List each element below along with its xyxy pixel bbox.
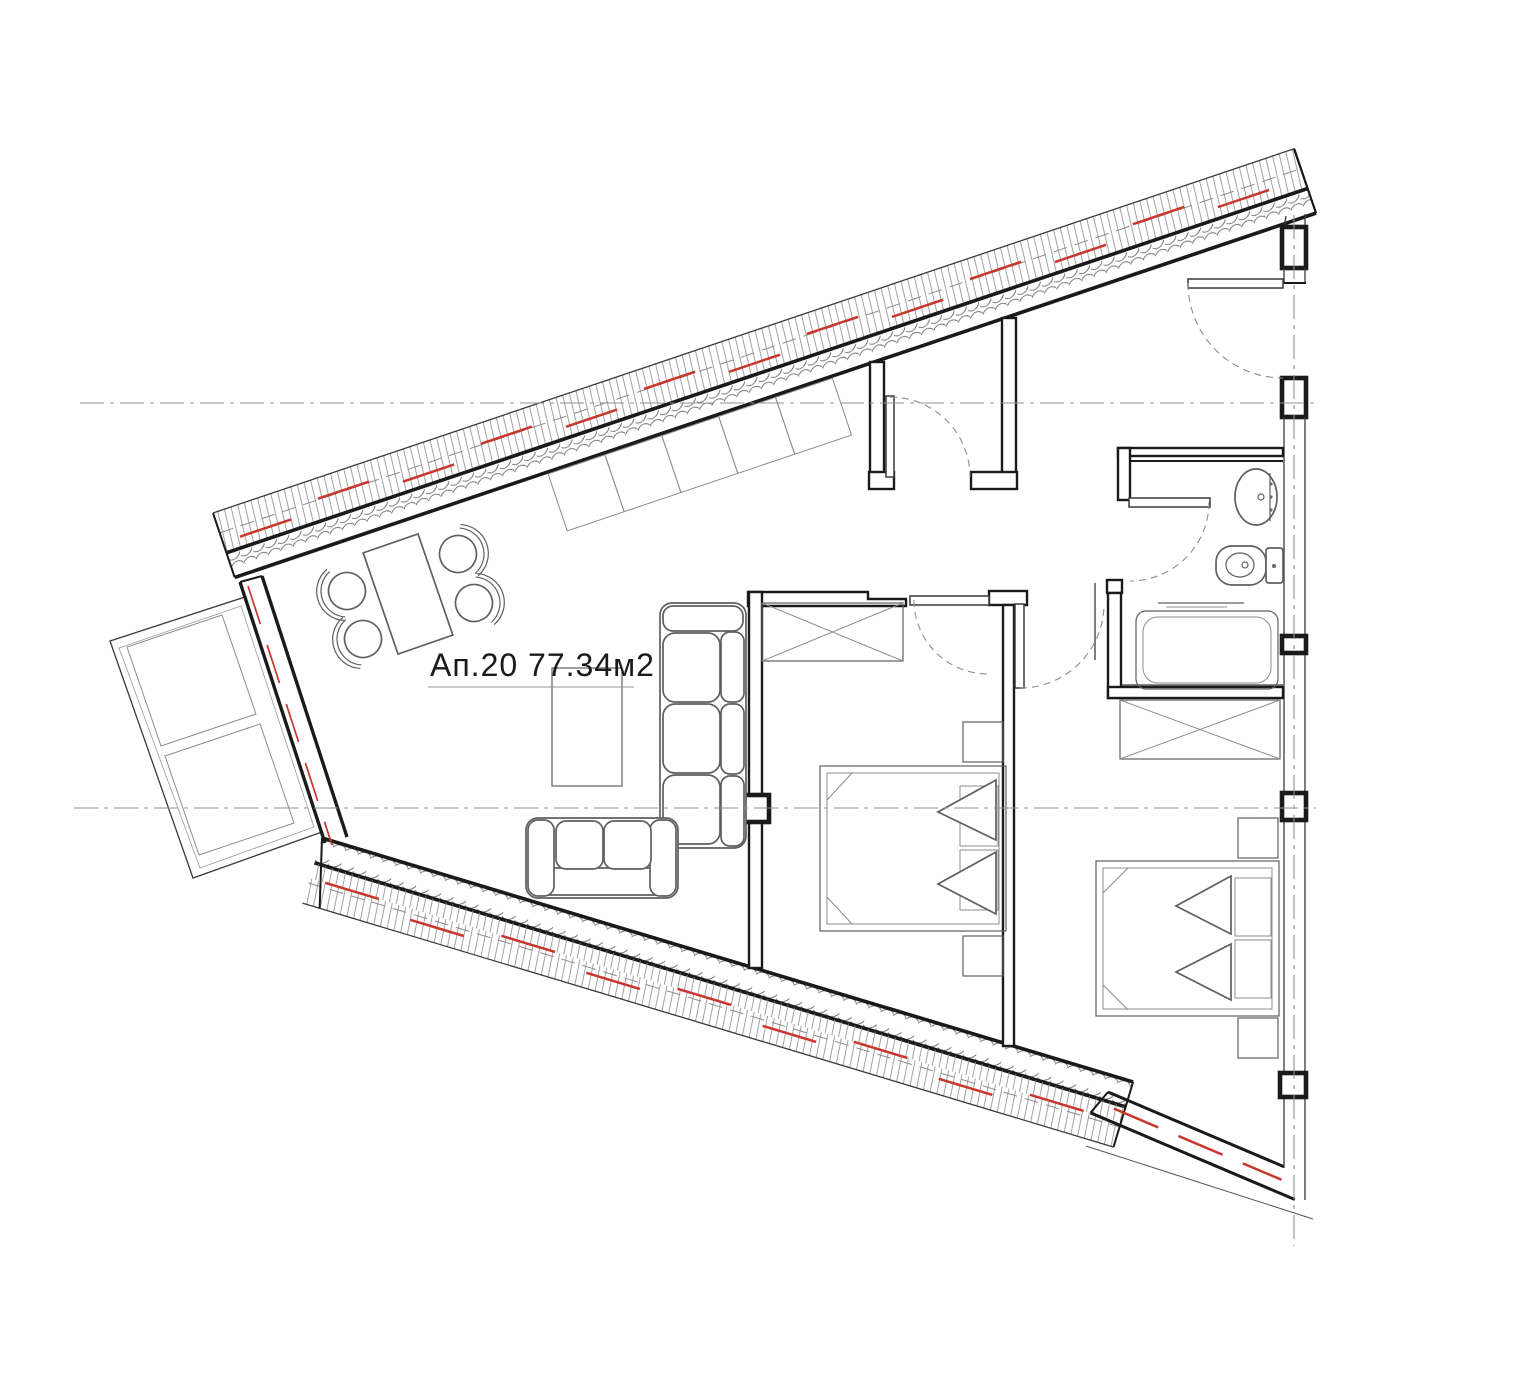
- bedroom2-furniture: [1096, 700, 1280, 1058]
- bed1-pillow: [938, 852, 996, 914]
- entrance-door-leaf: [1188, 279, 1283, 288]
- top-wall-hatch-band: [213, 149, 1308, 553]
- bathroom-left-wall-cap: [1107, 580, 1122, 593]
- dining-chair: [448, 568, 512, 635]
- bathroom-left-wall-upper: [1118, 448, 1130, 500]
- furniture: [309, 469, 1283, 1058]
- nightstand: [1238, 1018, 1278, 1058]
- hall-wall-left: [870, 362, 884, 474]
- bed2-pillow: [1176, 876, 1231, 934]
- window-band-lower-line: [1090, 1113, 1294, 1200]
- bedroom1-door-swing: [914, 600, 988, 674]
- doors: [886, 279, 1283, 688]
- right-wall-column: [1280, 1073, 1306, 1097]
- sofa-cushion: [556, 821, 603, 869]
- bedroom1-furniture: [762, 603, 1006, 976]
- apartment-label: Ап.20 77.34м2: [430, 647, 655, 683]
- living-bedroom1-partition: [749, 592, 762, 968]
- right-wall: [1280, 149, 1316, 1200]
- bedroom1-door-cap: [989, 591, 1027, 605]
- bathroom-left-wall-lower: [1108, 593, 1121, 698]
- dining-chair: [325, 607, 389, 674]
- interior-walls: [743, 318, 1283, 1046]
- bed2-headboard-section: [1235, 940, 1271, 998]
- top-wall-outer-edge: [213, 149, 1294, 513]
- bed1-fold-lines: [827, 773, 852, 924]
- floor-plan-page: Ап.20 77.34м2: [0, 0, 1536, 1393]
- bedroom1-door-leaf: [910, 596, 989, 605]
- sofa-three-seater: [660, 603, 746, 848]
- sofa-two-seater: [526, 818, 678, 898]
- sofa-armrest: [650, 820, 676, 896]
- bottom-wall-outer-edge: [302, 903, 1113, 1147]
- left-window-outer-line: [240, 582, 325, 843]
- left-window-top-cap: [240, 576, 262, 582]
- entrance-door-swing: [1188, 283, 1283, 378]
- dining-chair: [309, 559, 373, 626]
- bed2-headboard-section: [1235, 878, 1271, 936]
- floor-plan-drawing: Ап.20 77.34м2: [0, 0, 1536, 1393]
- sofa-cushion: [663, 704, 720, 773]
- top-wall-insulation-band: [226, 188, 1316, 577]
- nightstand: [963, 722, 1003, 762]
- balcony-grid-panel-lower: [165, 724, 294, 855]
- bed1-pillow: [938, 780, 996, 840]
- bedroom1-bedroom2-partition: [1003, 605, 1014, 1046]
- toilet: [1216, 546, 1283, 585]
- bedroom2-door-leaf: [1015, 604, 1024, 688]
- bedroom2-door-swing: [1020, 604, 1104, 688]
- sofa-cushion: [663, 633, 720, 702]
- entry-l-wall-vertical: [1002, 318, 1016, 474]
- bathtub: [1136, 611, 1278, 689]
- balcony-grid-panel-upper: [127, 615, 256, 746]
- sofa-armrest: [528, 820, 554, 896]
- sink: [1235, 469, 1277, 525]
- window-band-upper-line: [1108, 1092, 1284, 1167]
- bed2-fold-lines: [1103, 868, 1128, 1010]
- nightstand: [1238, 818, 1278, 858]
- bedroom1-top-wall: [748, 592, 906, 606]
- bathroom-door-swing: [1130, 502, 1209, 581]
- window-band-red-dashes: [1114, 1109, 1282, 1180]
- coffee-table: [552, 668, 622, 786]
- hall-door-leaf: [886, 396, 894, 477]
- hall-door-swing: [890, 397, 970, 477]
- bathroom-door-leaf: [1129, 498, 1210, 507]
- entry-l-wall-foot: [971, 472, 1017, 489]
- sofa-cushion: [604, 821, 651, 869]
- left-window-red-line: [248, 586, 332, 845]
- bed-bedroom2: [1096, 861, 1279, 1016]
- bed2-pillow: [1176, 944, 1231, 1000]
- bathroom-top-wall: [1118, 448, 1283, 456]
- nightstand: [963, 936, 1003, 976]
- top-wall-bold-line-inner: [235, 213, 1316, 577]
- bottom-right-sill-line: [1086, 1146, 1313, 1219]
- sofa-armrest: [663, 606, 743, 631]
